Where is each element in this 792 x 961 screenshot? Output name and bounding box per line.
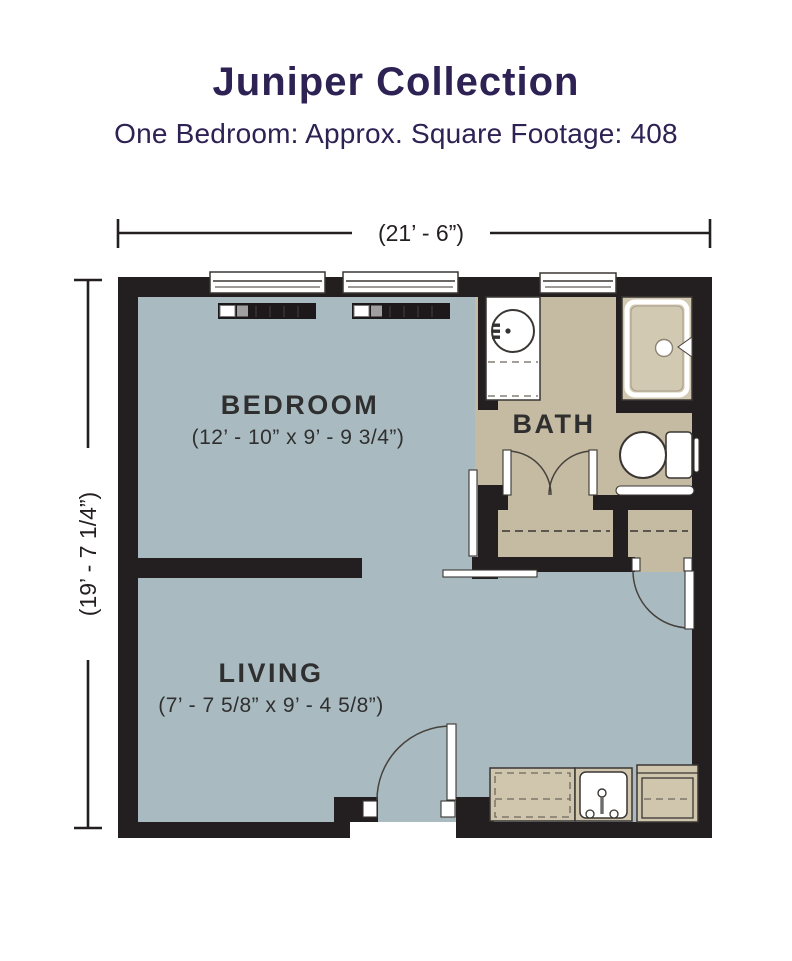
baseboard-heater-icon — [352, 303, 450, 319]
page-title: Juniper Collection — [0, 60, 792, 105]
window-icon — [343, 272, 458, 293]
wall-stub-door-right — [456, 797, 494, 838]
kitchen-counter-icon — [490, 768, 575, 821]
living-size: (7’ - 7 5/8” x 9’ - 4 5/8”) — [158, 694, 384, 717]
bedroom-label: BEDROOM — [221, 390, 380, 420]
plan-header: Juniper Collection One Bedroom: Approx. … — [0, 0, 792, 150]
kitchen-appliance-icon — [637, 765, 698, 822]
door-track-icon — [443, 570, 537, 577]
wall-bath-bottom — [593, 495, 692, 510]
wall-bottom-right — [478, 822, 712, 838]
bath-window-icon — [540, 273, 616, 293]
dim-width-text: (21’ - 6”) — [378, 220, 464, 246]
dimension-left: (19’ - 7 1/4”) — [74, 280, 102, 828]
bath-label: BATH — [513, 409, 596, 439]
bedroom-sliding-door-icon — [469, 470, 477, 556]
vanity-sink-icon — [486, 297, 540, 400]
grab-bar-icon — [616, 486, 694, 495]
wall-bottom-left — [118, 822, 350, 838]
window-icon — [210, 272, 325, 293]
wall-right — [692, 277, 712, 838]
shower-icon — [622, 297, 692, 400]
shower-drain-icon — [656, 340, 673, 357]
living-label: LIVING — [218, 658, 323, 688]
wall-shower-bottom — [616, 400, 692, 413]
bedroom-size: (12’ - 10” x 9’ - 9 3/4”) — [192, 426, 405, 449]
floor-plan-page: { "header": { "title": "Juniper Collecti… — [0, 0, 792, 961]
kitchen — [490, 765, 698, 822]
wall-bedroom-living — [138, 558, 362, 578]
page-subtitle: One Bedroom: Approx. Square Footage: 408 — [0, 118, 792, 150]
toilet-icon — [620, 432, 699, 478]
dimension-top: (21’ - 6”) — [118, 219, 710, 248]
dim-height-text: (19’ - 7 1/4”) — [75, 492, 101, 616]
wall-left — [118, 277, 138, 838]
baseboard-heater-icon — [218, 303, 316, 319]
kitchen-sink-icon — [575, 768, 632, 821]
